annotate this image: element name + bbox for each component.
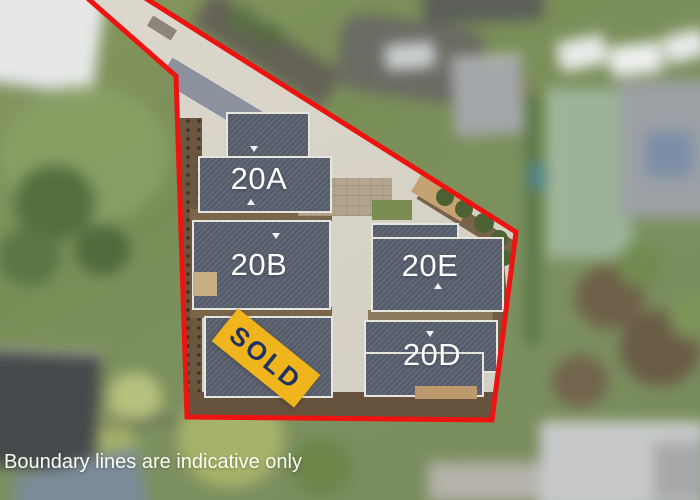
patio-bottom	[428, 462, 540, 500]
tree-bottom-3	[108, 372, 162, 422]
roof-vent-20b	[272, 233, 280, 239]
silver-car	[384, 41, 436, 71]
tree-left-3	[75, 225, 130, 275]
unit-label-20d: 20D	[403, 337, 461, 373]
garden-green-1	[616, 244, 664, 288]
hedge-right	[525, 92, 540, 347]
grey-shed-top-right	[450, 54, 525, 138]
roof-vent-20a-top	[250, 146, 258, 152]
disclaimer-text: Boundary lines are indicative only	[4, 451, 302, 474]
unit-20b-deck	[193, 272, 217, 296]
shrub-top-2	[256, 24, 282, 46]
neighbour-roof-top	[422, 0, 543, 24]
aerial-listing-photo: 20A 20B 20E 20D SOLD Boundary lines are …	[0, 0, 700, 500]
teal-car	[529, 163, 545, 190]
unit-label-20e: 20E	[402, 248, 459, 284]
solar-panel	[646, 132, 692, 176]
neighbour-roof-bottom-right-dark	[653, 442, 700, 500]
unit-20d-deck	[415, 386, 477, 399]
shrub-top-1	[228, 8, 258, 34]
garden-brown-3	[552, 355, 608, 407]
tree-left-2	[0, 228, 60, 286]
unit-20a-roof-upper	[226, 112, 310, 162]
courtyard-lawn	[372, 200, 412, 220]
unit-label-20a: 20A	[231, 161, 288, 197]
unit-label-20b: 20B	[231, 247, 288, 283]
white-van-2	[608, 41, 663, 77]
neighbour-roof-top-left	[0, 0, 107, 97]
roof-vent-20a-bottom	[247, 199, 255, 205]
